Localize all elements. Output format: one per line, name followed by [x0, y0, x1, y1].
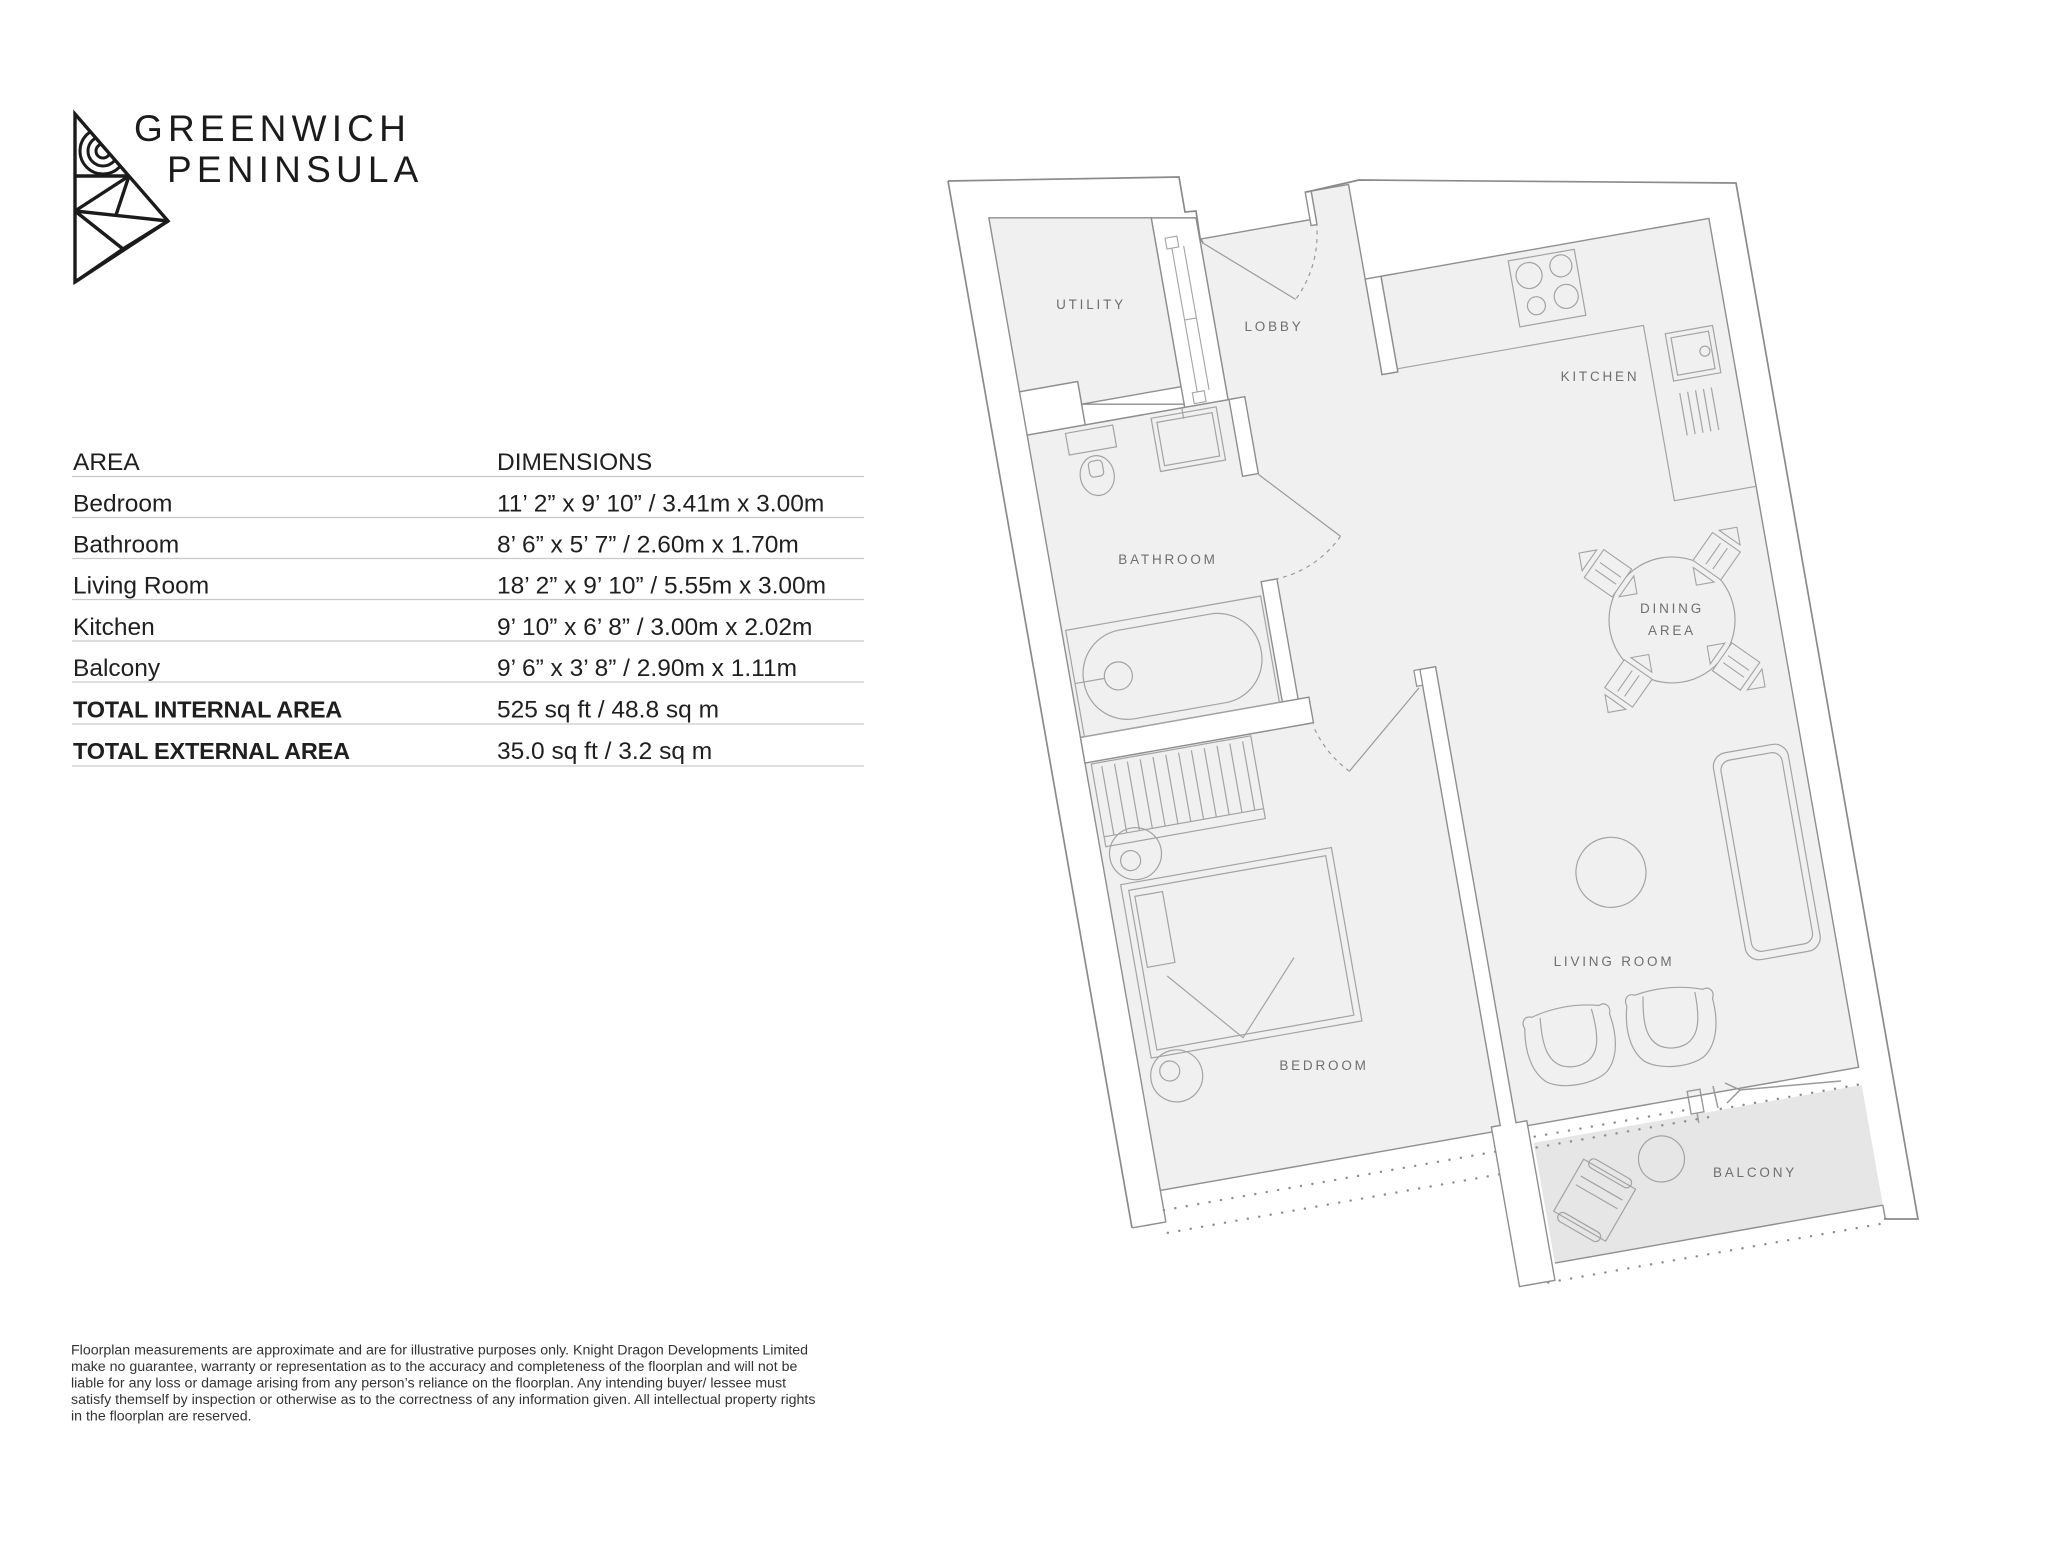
svg-text:satisfy themself by inspection: satisfy themself by inspection or otherw… [71, 1392, 815, 1408]
svg-text:DIMENSIONS: DIMENSIONS [497, 449, 652, 476]
svg-text:TOTAL EXTERNAL AREA: TOTAL EXTERNAL AREA [73, 738, 350, 764]
svg-text:GREENWICH: GREENWICH [134, 108, 411, 149]
svg-text:UTILITY: UTILITY [1056, 297, 1126, 312]
svg-text:11’ 2” x 9’ 10” / 3.41m x 3.00: 11’ 2” x 9’ 10” / 3.41m x 3.00m [497, 491, 824, 518]
svg-text:LOBBY: LOBBY [1244, 319, 1303, 334]
svg-text:18’ 2” x 9’ 10” / 5.55m x 3.00: 18’ 2” x 9’ 10” / 5.55m x 3.00m [497, 573, 826, 600]
svg-text:Floorplan measurements are app: Floorplan measurements are approximate a… [71, 1343, 808, 1359]
svg-text:LIVING ROOM: LIVING ROOM [1554, 954, 1675, 969]
svg-text:AREA: AREA [1648, 623, 1696, 638]
svg-text:DINING: DINING [1640, 601, 1704, 616]
svg-text:Bedroom: Bedroom [73, 491, 172, 518]
svg-text:TOTAL INTERNAL AREA: TOTAL INTERNAL AREA [73, 697, 342, 723]
svg-text:in the floorplan are reserved.: in the floorplan are reserved. [71, 1409, 252, 1425]
svg-text:Balcony: Balcony [73, 655, 161, 682]
svg-text:Bathroom: Bathroom [73, 532, 179, 559]
svg-text:make no guarantee, warranty or: make no guarantee, warranty or represent… [71, 1359, 797, 1375]
svg-text:BATHROOM: BATHROOM [1118, 552, 1217, 567]
svg-text:9’ 10” x 6’ 8” / 3.00m x 2.02m: 9’ 10” x 6’ 8” / 3.00m x 2.02m [497, 614, 812, 641]
svg-text:Kitchen: Kitchen [73, 614, 155, 641]
svg-text:35.0 sq ft / 3.2 sq m: 35.0 sq ft / 3.2 sq m [497, 738, 712, 765]
svg-text:525 sq ft / 48.8 sq m: 525 sq ft / 48.8 sq m [497, 697, 719, 724]
svg-text:Living Room: Living Room [73, 573, 209, 600]
svg-text:BEDROOM: BEDROOM [1279, 1058, 1368, 1073]
svg-text:BALCONY: BALCONY [1713, 1165, 1797, 1180]
svg-text:PENINSULA: PENINSULA [167, 149, 424, 190]
svg-text:liable for any loss or damage: liable for any loss or damage arising fr… [71, 1376, 786, 1392]
svg-text:8’ 6” x 5’ 7” / 2.60m x 1.70m: 8’ 6” x 5’ 7” / 2.60m x 1.70m [497, 532, 799, 559]
svg-text:9’ 6” x 3’ 8” / 2.90m x 1.11m: 9’ 6” x 3’ 8” / 2.90m x 1.11m [497, 655, 797, 682]
svg-text:AREA: AREA [73, 449, 140, 476]
svg-text:KITCHEN: KITCHEN [1561, 369, 1640, 384]
